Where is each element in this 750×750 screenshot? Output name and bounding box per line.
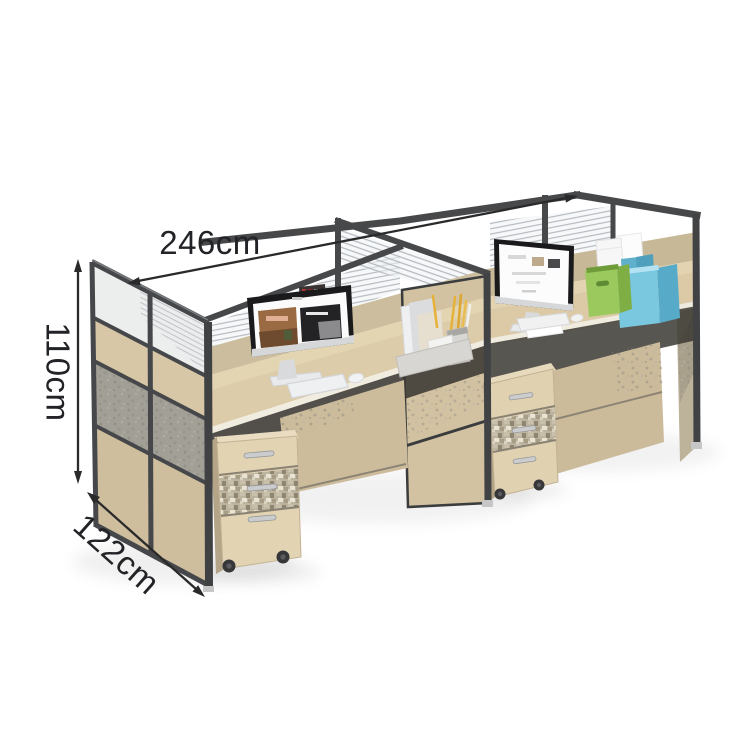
workstation-scene: 246cm 110cm 122cm [0, 0, 750, 750]
pedestal-left [211, 430, 301, 574]
green-storage-box [585, 264, 632, 317]
pedestal-right [483, 363, 558, 501]
product-dimension-illustration: 246cm 110cm 122cm [0, 0, 750, 750]
dimension-width-label: 246cm [159, 224, 261, 261]
dimension-height-label: 110cm [39, 322, 76, 421]
